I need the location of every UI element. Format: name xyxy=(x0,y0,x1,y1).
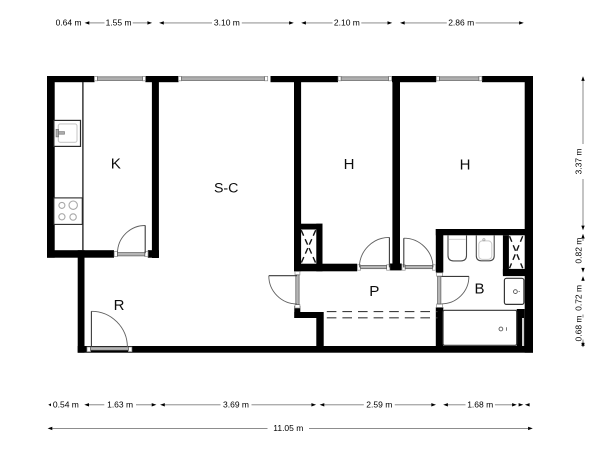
svg-text:11.05 m: 11.05 m xyxy=(273,423,303,433)
svg-text:H: H xyxy=(344,156,355,173)
svg-text:S-C: S-C xyxy=(214,181,238,197)
svg-text:2.10 m: 2.10 m xyxy=(334,18,360,28)
svg-text:0.64 m: 0.64 m xyxy=(56,18,82,28)
svg-text:0.72 m: 0.72 m xyxy=(574,285,584,311)
svg-text:B: B xyxy=(474,280,484,297)
svg-text:1.68 m: 1.68 m xyxy=(467,399,493,409)
svg-text:3.37 m: 3.37 m xyxy=(574,149,584,175)
svg-text:1.55 m: 1.55 m xyxy=(106,18,132,28)
svg-text:3.69 m: 3.69 m xyxy=(223,399,249,409)
svg-text:R: R xyxy=(114,297,125,314)
svg-text:2.59 m: 2.59 m xyxy=(366,399,392,409)
svg-text:0.54 m: 0.54 m xyxy=(53,399,79,409)
svg-text:2.86 m: 2.86 m xyxy=(448,18,474,28)
svg-text:H: H xyxy=(460,156,471,173)
svg-text:0.82 m: 0.82 m xyxy=(574,238,584,264)
svg-text:1.63 m: 1.63 m xyxy=(107,399,133,409)
svg-text:3.10 m: 3.10 m xyxy=(214,18,240,28)
svg-text:K: K xyxy=(111,156,121,173)
svg-text:0.68 m: 0.68 m xyxy=(574,316,584,342)
svg-text:P: P xyxy=(369,283,379,300)
